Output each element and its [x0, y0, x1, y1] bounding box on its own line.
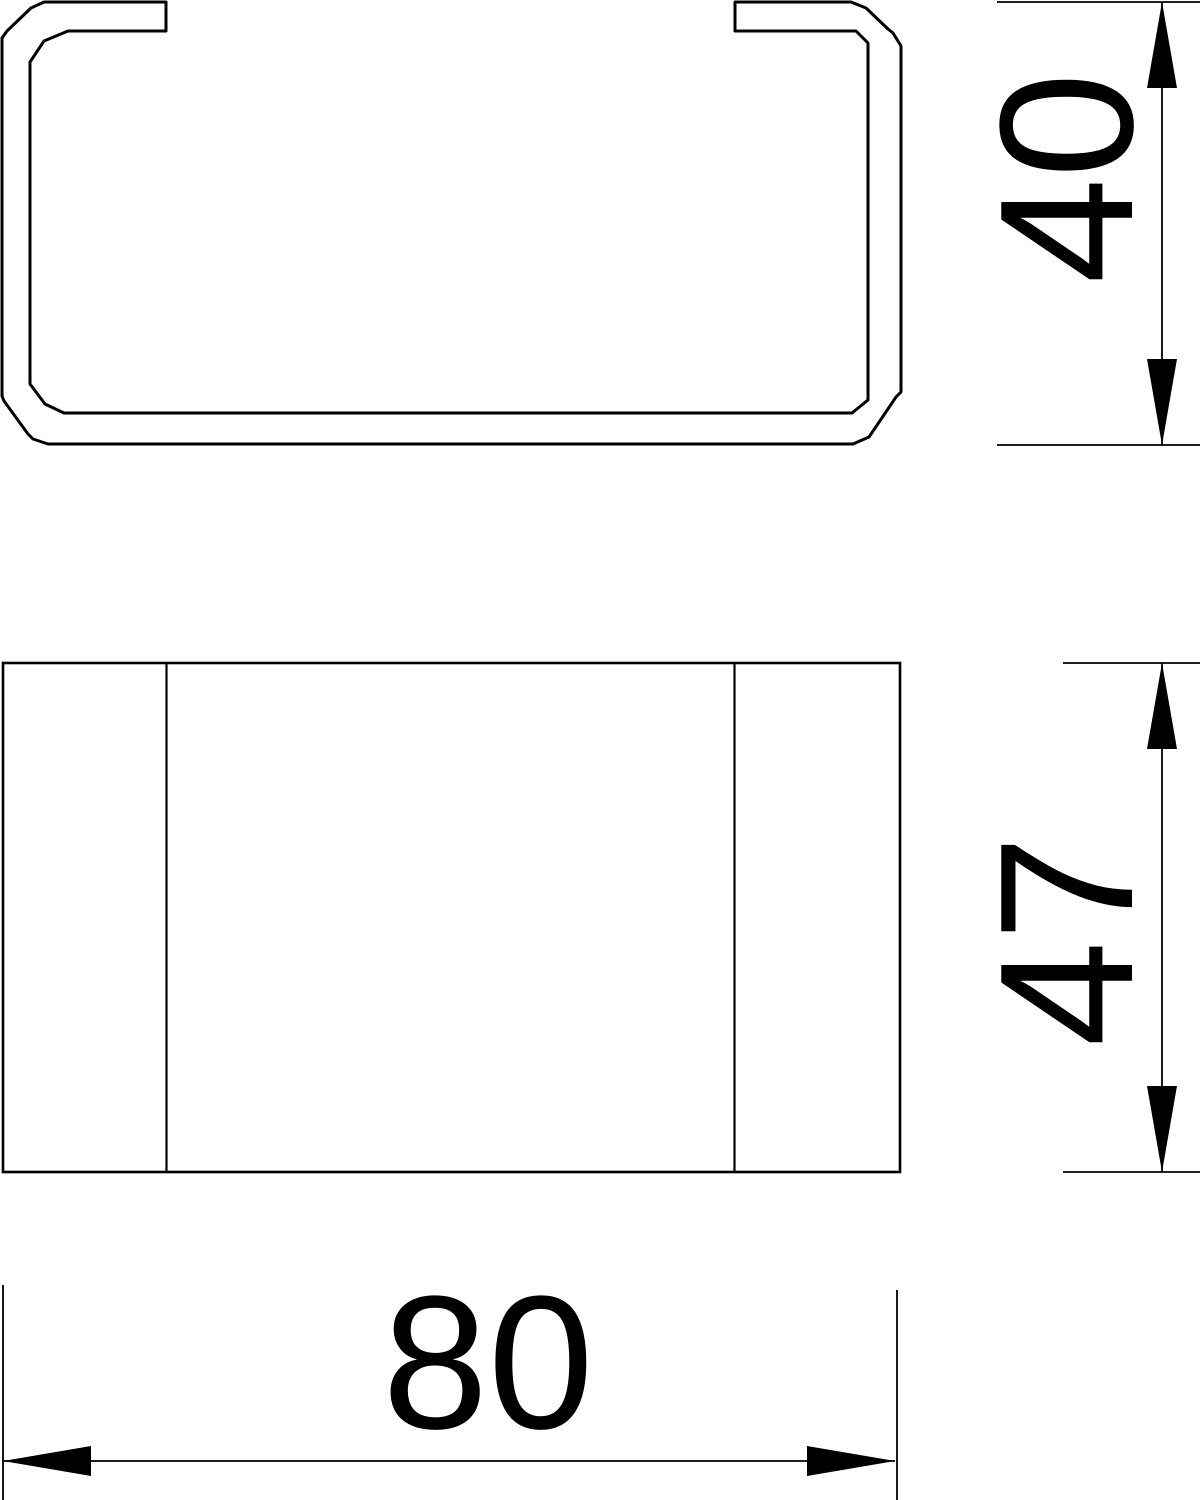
technical-drawing-canvas: 40 47 80	[0, 0, 1200, 1500]
duct-profile-outline	[2, 2, 901, 444]
dimension-label-width: 80	[382, 1257, 593, 1469]
arrowhead-up-icon	[1147, 663, 1177, 749]
front-view-body	[3, 663, 900, 1172]
cross-section-view	[2, 2, 901, 444]
dimension-depth-47: 47	[961, 663, 1200, 1172]
arrowhead-left-icon	[3, 1446, 91, 1476]
arrowhead-down-icon	[1147, 359, 1177, 445]
dimension-width-80: 80	[3, 1257, 897, 1500]
dimension-label-height: 40	[961, 72, 1173, 283]
dimension-label-depth: 47	[961, 835, 1173, 1046]
dimension-height-40: 40	[961, 2, 1200, 445]
front-view	[3, 663, 900, 1172]
arrowhead-right-icon	[807, 1446, 895, 1476]
technical-drawing-page: 40 47 80	[0, 0, 1200, 1500]
arrowhead-down-icon	[1147, 1086, 1177, 1172]
